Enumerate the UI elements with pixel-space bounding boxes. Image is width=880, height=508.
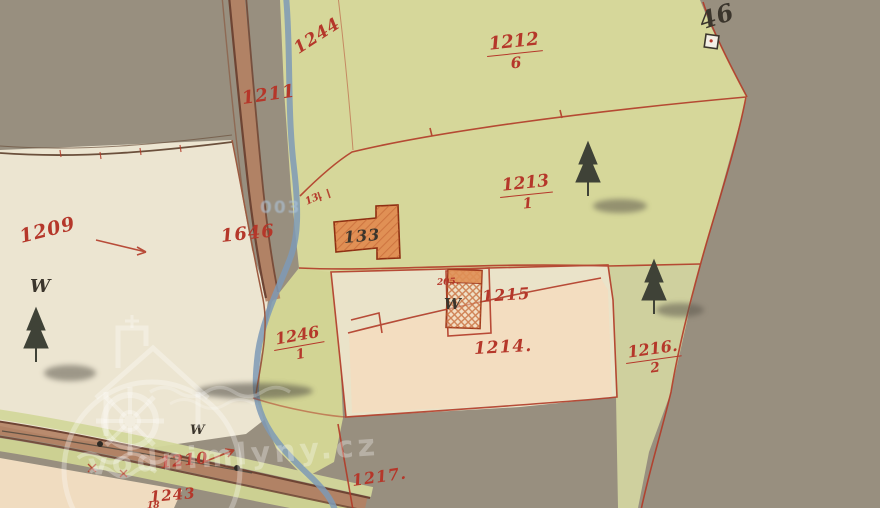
parcel-label-1215: 1215: [481, 286, 531, 305]
parcel-label-1213-1: 1213 1: [498, 173, 555, 215]
parcel-subnumber: 6: [510, 54, 522, 72]
label-fragment-18: 18: [147, 502, 160, 508]
house-number-205: 205.: [437, 278, 459, 288]
parcel-subnumber: 2: [649, 359, 661, 376]
parcel-subnumber: 1: [522, 195, 534, 212]
cadastral-map-viewport: 1244 1211 1212 6 1213 1 1209 1646 133 20…: [0, 0, 880, 508]
meadow-mark-w: W: [444, 297, 462, 312]
parcel-label-1214: 1214.: [474, 338, 533, 358]
parcel-subnumber: 1: [295, 346, 307, 363]
house-number-133: 133: [343, 227, 381, 246]
parcel-number: 1212: [485, 30, 543, 57]
meadow-mark-w: W: [190, 424, 206, 437]
parcel-number: 1213: [498, 173, 553, 198]
parcel-label-1212-6: 1212 6: [485, 30, 545, 74]
map-artwork: [0, 0, 880, 508]
boundary-marker: [704, 34, 719, 49]
meadow-mark-w: W: [30, 278, 51, 296]
